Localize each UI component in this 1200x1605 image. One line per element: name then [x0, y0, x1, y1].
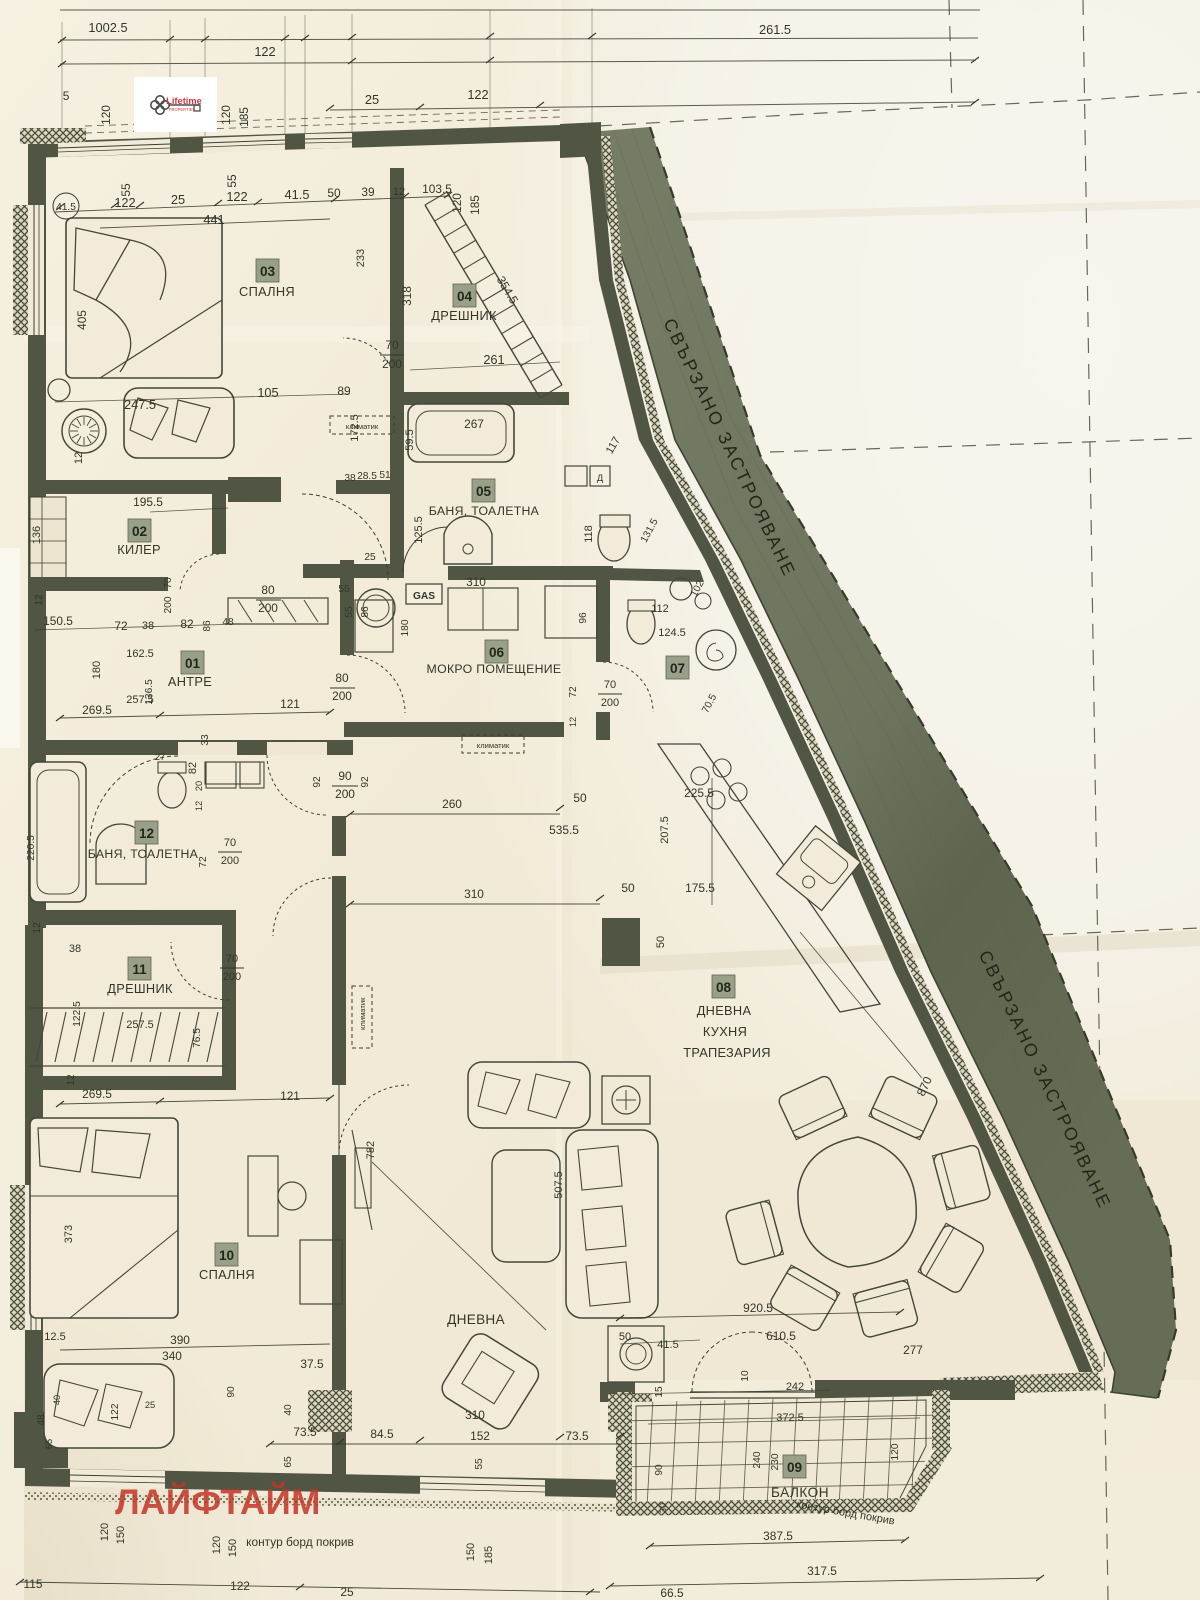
- svg-text:50: 50: [621, 881, 635, 895]
- svg-text:20: 20: [194, 781, 204, 791]
- svg-text:72: 72: [114, 619, 128, 633]
- svg-text:50: 50: [619, 1331, 631, 1343]
- svg-text:121: 121: [280, 697, 300, 711]
- svg-text:195.5: 195.5: [133, 495, 163, 509]
- svg-text:БАНЯ, ТОАЛЕТНА: БАНЯ, ТОАЛЕТНА: [429, 504, 540, 518]
- svg-text:55: 55: [474, 1458, 485, 1470]
- svg-text:55: 55: [225, 174, 239, 188]
- svg-text:105: 105: [257, 385, 278, 400]
- svg-text:50: 50: [327, 186, 341, 200]
- svg-text:90: 90: [654, 1464, 665, 1476]
- svg-text:120: 120: [890, 1443, 901, 1460]
- svg-text:310: 310: [465, 1408, 485, 1422]
- svg-text:контур борд покрив: контур борд покрив: [246, 1535, 354, 1549]
- svg-text:ДНЕВНА: ДНЕВНА: [447, 1312, 505, 1327]
- svg-text:86: 86: [202, 620, 213, 632]
- svg-text:80: 80: [261, 583, 275, 597]
- svg-text:84.5: 84.5: [370, 1427, 394, 1441]
- svg-text:124.5: 124.5: [658, 627, 686, 639]
- svg-text:48: 48: [222, 617, 234, 628]
- svg-text:200: 200: [223, 971, 241, 983]
- svg-text:КИЛЕР: КИЛЕР: [117, 542, 161, 557]
- svg-text:200: 200: [601, 697, 619, 709]
- svg-text:233: 233: [355, 249, 367, 267]
- svg-text:55: 55: [344, 606, 355, 618]
- svg-text:70: 70: [163, 577, 174, 589]
- svg-text:38: 38: [69, 943, 81, 955]
- svg-text:48: 48: [36, 1414, 47, 1426]
- svg-text:172.5: 172.5: [349, 414, 361, 442]
- svg-text:920.5: 920.5: [743, 1301, 773, 1315]
- svg-text:51: 51: [379, 470, 391, 481]
- svg-text:12: 12: [73, 452, 85, 464]
- svg-text:242: 242: [786, 1381, 804, 1393]
- svg-text:535.5: 535.5: [549, 823, 579, 837]
- svg-text:92: 92: [312, 776, 323, 788]
- svg-text:261.5: 261.5: [759, 22, 791, 37]
- svg-text:65: 65: [44, 1439, 54, 1449]
- svg-text:340: 340: [162, 1349, 182, 1363]
- svg-text:200: 200: [382, 357, 402, 371]
- svg-text:50: 50: [573, 791, 587, 805]
- svg-text:38: 38: [344, 473, 356, 484]
- svg-text:12: 12: [194, 801, 204, 811]
- svg-text:150: 150: [227, 1539, 239, 1557]
- svg-text:120: 120: [99, 1523, 111, 1541]
- svg-text:387.5: 387.5: [763, 1529, 793, 1543]
- svg-text:55: 55: [338, 584, 350, 595]
- svg-text:ДНЕВНА: ДНЕВНА: [697, 1003, 752, 1018]
- svg-text:климатик: климатик: [358, 997, 367, 1030]
- svg-text:175.5: 175.5: [685, 881, 715, 895]
- svg-text:ДРЕШНИК: ДРЕШНИК: [107, 981, 173, 996]
- svg-text:12: 12: [139, 826, 155, 841]
- svg-text:65: 65: [283, 1456, 294, 1468]
- svg-text:220.5: 220.5: [26, 835, 37, 861]
- svg-text:122: 122: [110, 1403, 121, 1420]
- svg-text:610.5: 610.5: [766, 1329, 796, 1343]
- svg-text:30: 30: [658, 1503, 668, 1513]
- svg-text:70: 70: [604, 679, 616, 691]
- svg-text:136: 136: [31, 526, 43, 544]
- svg-text:GAS: GAS: [413, 591, 435, 602]
- svg-text:90: 90: [226, 1386, 237, 1398]
- svg-text:БАНЯ, ТОАЛЕТНА: БАНЯ, ТОАЛЕТНА: [88, 847, 199, 861]
- svg-text:06: 06: [489, 645, 505, 660]
- svg-text:12: 12: [34, 594, 45, 606]
- svg-text:28.5: 28.5: [357, 471, 377, 482]
- svg-text:86: 86: [360, 606, 371, 618]
- svg-text:310: 310: [464, 887, 484, 901]
- svg-text:25: 25: [145, 1400, 155, 1410]
- svg-text:185: 185: [468, 195, 482, 215]
- svg-text:120: 120: [99, 105, 113, 125]
- svg-text:70: 70: [224, 837, 236, 849]
- svg-text:225.5: 225.5: [684, 786, 714, 800]
- svg-text:405: 405: [75, 310, 89, 330]
- svg-text:25: 25: [340, 1585, 354, 1599]
- svg-text:ЛАЙФТАЙМ: ЛАЙФТАЙМ: [115, 1482, 321, 1522]
- svg-text:50: 50: [655, 936, 667, 948]
- svg-text:103.5: 103.5: [422, 182, 452, 196]
- svg-text:40: 40: [52, 1395, 62, 1405]
- svg-text:122: 122: [226, 189, 247, 204]
- svg-text:73.5: 73.5: [565, 1429, 589, 1443]
- svg-text:39: 39: [361, 185, 375, 199]
- svg-text:82: 82: [180, 617, 194, 631]
- svg-text:122.5: 122.5: [72, 1001, 83, 1027]
- svg-text:41.5: 41.5: [285, 187, 310, 202]
- svg-text:МОКРО ПОМЕЩЕНИЕ: МОКРО ПОМЕЩЕНИЕ: [427, 662, 562, 676]
- svg-text:СПАЛНЯ: СПАЛНЯ: [239, 284, 295, 299]
- svg-text:27: 27: [155, 752, 165, 762]
- svg-text:200: 200: [335, 787, 355, 801]
- svg-text:12: 12: [393, 186, 405, 198]
- svg-text:150: 150: [465, 1543, 477, 1561]
- svg-text:40: 40: [283, 1404, 294, 1416]
- svg-text:269.5: 269.5: [82, 703, 112, 717]
- svg-text:38: 38: [142, 620, 154, 632]
- svg-text:180: 180: [91, 661, 103, 679]
- svg-text:373: 373: [63, 1225, 75, 1243]
- svg-text:120: 120: [219, 105, 233, 125]
- svg-text:122: 122: [254, 44, 275, 59]
- svg-text:115: 115: [24, 1577, 43, 1591]
- svg-text:15: 15: [654, 1386, 665, 1398]
- svg-text:12: 12: [32, 922, 43, 934]
- svg-text:372.5: 372.5: [776, 1412, 804, 1424]
- svg-text:390: 390: [170, 1333, 190, 1347]
- svg-text:507.5: 507.5: [553, 1171, 565, 1199]
- svg-text:66.5: 66.5: [660, 1586, 684, 1600]
- svg-text:04: 04: [457, 289, 473, 304]
- svg-text:200: 200: [221, 855, 239, 867]
- svg-text:125.5: 125.5: [413, 516, 425, 544]
- svg-text:118: 118: [583, 525, 595, 543]
- svg-text:150.5: 150.5: [43, 614, 73, 628]
- svg-text:185: 185: [483, 1546, 495, 1564]
- svg-text:59.5: 59.5: [404, 429, 416, 450]
- svg-text:70: 70: [226, 953, 238, 965]
- svg-text:207.5: 207.5: [659, 816, 671, 844]
- svg-text:121: 121: [280, 1089, 300, 1103]
- svg-text:162.5: 162.5: [126, 648, 154, 660]
- svg-text:1002.5: 1002.5: [88, 20, 127, 35]
- svg-text:122: 122: [467, 87, 488, 102]
- svg-text:120: 120: [211, 1536, 223, 1554]
- svg-text:92: 92: [360, 776, 371, 788]
- svg-text:152: 152: [470, 1429, 490, 1443]
- svg-text:80: 80: [335, 671, 349, 685]
- svg-text:ТРАПЕЗАРИЯ: ТРАПЕЗАРИЯ: [683, 1045, 771, 1060]
- svg-text:12: 12: [568, 717, 578, 727]
- svg-text:180: 180: [400, 619, 411, 636]
- svg-text:11: 11: [132, 962, 147, 977]
- svg-text:Lifetime: Lifetime: [166, 96, 202, 106]
- svg-text:782: 782: [365, 1141, 377, 1159]
- svg-text:200: 200: [258, 601, 278, 615]
- svg-text:82: 82: [187, 762, 199, 774]
- svg-text:09: 09: [787, 1460, 803, 1475]
- svg-text:89: 89: [337, 384, 351, 398]
- svg-text:267: 267: [464, 417, 484, 431]
- svg-text:03: 03: [260, 264, 276, 279]
- svg-text:01: 01: [185, 656, 201, 671]
- svg-text:112: 112: [651, 603, 669, 615]
- svg-text:200: 200: [332, 689, 352, 703]
- svg-text:200: 200: [163, 596, 174, 613]
- svg-text:БАЛКОН: БАЛКОН: [771, 1485, 829, 1500]
- svg-text:240: 240: [752, 1451, 763, 1468]
- svg-text:12.5: 12.5: [44, 1331, 65, 1343]
- svg-text:10: 10: [219, 1248, 234, 1263]
- svg-text:02: 02: [132, 524, 148, 539]
- svg-text:72: 72: [568, 686, 579, 698]
- svg-text:ДРЕШНИК: ДРЕШНИК: [431, 308, 497, 323]
- svg-text:PROPERTIES: PROPERTIES: [169, 107, 196, 112]
- svg-text:СПАЛНЯ: СПАЛНЯ: [199, 1267, 255, 1282]
- svg-text:96: 96: [578, 612, 589, 624]
- svg-text:25: 25: [364, 552, 376, 563]
- svg-text:122: 122: [230, 1579, 250, 1593]
- svg-text:41.5: 41.5: [657, 1339, 678, 1351]
- svg-text:257.5: 257.5: [126, 694, 154, 706]
- svg-text:441: 441: [203, 212, 224, 227]
- svg-text:76.5: 76.5: [192, 1028, 203, 1048]
- svg-text:12: 12: [66, 1074, 77, 1086]
- svg-text:КУХНЯ: КУХНЯ: [703, 1024, 747, 1039]
- svg-text:климатик: климатик: [477, 741, 510, 750]
- svg-text:310: 310: [466, 575, 486, 589]
- svg-text:318: 318: [400, 286, 414, 306]
- svg-text:269.5: 269.5: [82, 1087, 112, 1101]
- svg-text:25: 25: [171, 192, 185, 207]
- svg-text:317.5: 317.5: [807, 1564, 837, 1578]
- svg-text:25: 25: [365, 92, 379, 107]
- svg-text:37.5: 37.5: [300, 1357, 324, 1371]
- svg-text:Д: Д: [597, 473, 604, 483]
- svg-text:05: 05: [476, 484, 492, 499]
- svg-text:10: 10: [740, 1370, 751, 1382]
- svg-text:150: 150: [115, 1526, 127, 1544]
- svg-text:257.5: 257.5: [126, 1019, 154, 1031]
- svg-text:90: 90: [338, 769, 352, 783]
- svg-text:08: 08: [716, 980, 732, 995]
- svg-text:185: 185: [237, 107, 251, 127]
- svg-text:70: 70: [385, 338, 399, 352]
- svg-text:5: 5: [63, 89, 70, 103]
- svg-text:07: 07: [670, 661, 685, 676]
- svg-text:230: 230: [770, 1453, 781, 1470]
- svg-text:72: 72: [198, 856, 209, 868]
- svg-text:260: 260: [442, 797, 462, 811]
- svg-text:73.5: 73.5: [293, 1425, 317, 1439]
- svg-text:АНТРЕ: АНТРЕ: [168, 674, 212, 689]
- svg-text:33: 33: [200, 734, 211, 746]
- svg-text:277: 277: [903, 1343, 923, 1357]
